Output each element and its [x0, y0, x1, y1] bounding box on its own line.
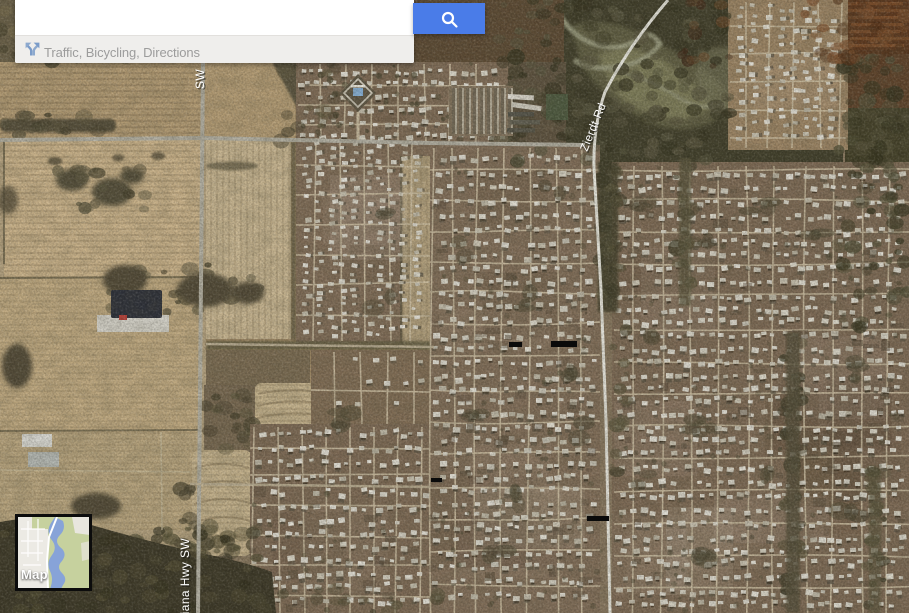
svg-text:SW: SW	[193, 69, 207, 89]
svg-text:Triana Hwy SW: Triana Hwy SW	[178, 538, 192, 613]
